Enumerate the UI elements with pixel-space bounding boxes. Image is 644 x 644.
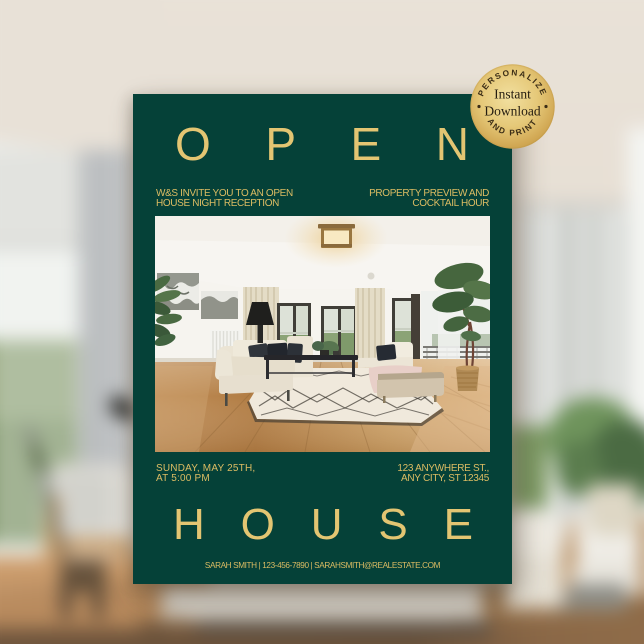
svg-text:Instant: Instant <box>494 87 531 102</box>
svg-text:Download: Download <box>484 104 540 119</box>
